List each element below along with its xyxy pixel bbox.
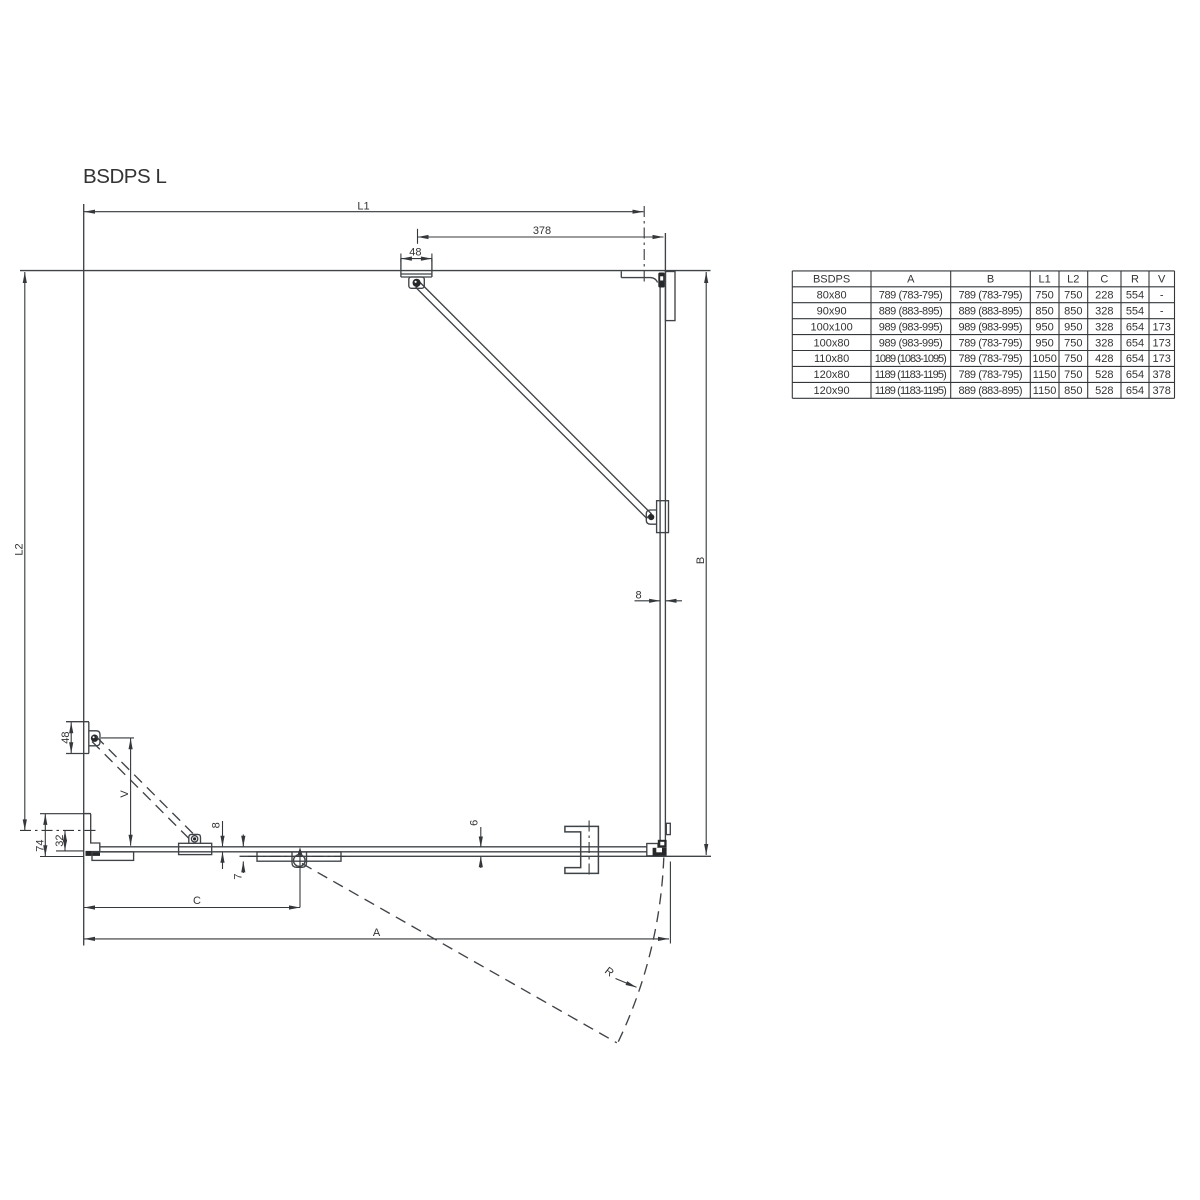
svg-text:90x90: 90x90 — [817, 306, 847, 318]
svg-text:654: 654 — [1126, 337, 1144, 349]
svg-text:889 (883-895): 889 (883-895) — [959, 306, 1023, 318]
svg-text:328: 328 — [1095, 337, 1113, 349]
svg-text:100x80: 100x80 — [814, 337, 850, 349]
svg-text:173: 173 — [1153, 353, 1171, 365]
svg-text:173: 173 — [1153, 321, 1171, 333]
svg-text:8: 8 — [635, 589, 641, 601]
svg-text:950: 950 — [1035, 337, 1053, 349]
svg-text:378: 378 — [533, 225, 551, 237]
svg-text:889 (883-895): 889 (883-895) — [879, 306, 943, 318]
svg-text:750: 750 — [1064, 290, 1082, 302]
svg-text:V: V — [119, 790, 131, 798]
svg-text:1150: 1150 — [1033, 385, 1057, 397]
svg-text:789 (783-795): 789 (783-795) — [959, 290, 1023, 302]
svg-text:120x90: 120x90 — [814, 385, 850, 397]
svg-text:528: 528 — [1095, 385, 1113, 397]
svg-text:750: 750 — [1064, 369, 1082, 381]
svg-text:654: 654 — [1126, 369, 1144, 381]
svg-text:74: 74 — [35, 839, 47, 851]
svg-text:889 (883-895): 889 (883-895) — [959, 385, 1023, 397]
svg-text:789 (783-795): 789 (783-795) — [959, 369, 1023, 381]
svg-text:R: R — [1131, 274, 1139, 286]
svg-text:378: 378 — [1153, 369, 1171, 381]
svg-text:528: 528 — [1095, 369, 1113, 381]
svg-text:48: 48 — [409, 247, 421, 259]
svg-text:7: 7 — [233, 873, 245, 879]
svg-text:L1: L1 — [1038, 274, 1050, 286]
svg-text:-: - — [1160, 306, 1164, 318]
svg-text:654: 654 — [1126, 385, 1144, 397]
svg-text:1189 (1183-1195): 1189 (1183-1195) — [875, 369, 947, 381]
svg-text:750: 750 — [1064, 353, 1082, 365]
svg-text:V: V — [1158, 274, 1166, 286]
svg-text:32: 32 — [54, 834, 66, 846]
svg-text:R: R — [602, 965, 616, 979]
svg-text:328: 328 — [1095, 306, 1113, 318]
svg-text:654: 654 — [1126, 321, 1144, 333]
svg-text:428: 428 — [1095, 353, 1113, 365]
svg-text:789 (783-795): 789 (783-795) — [959, 353, 1023, 365]
svg-text:L2: L2 — [14, 543, 26, 555]
svg-text:228: 228 — [1095, 290, 1113, 302]
svg-text:554: 554 — [1126, 290, 1144, 302]
svg-text:BSDPS L: BSDPS L — [83, 165, 166, 188]
svg-text:-: - — [1160, 290, 1164, 302]
svg-text:554: 554 — [1126, 306, 1144, 318]
svg-text:1089 (1083-1095): 1089 (1083-1095) — [875, 353, 947, 365]
svg-text:A: A — [907, 274, 915, 286]
svg-text:C: C — [193, 895, 201, 907]
svg-text:989 (983-995): 989 (983-995) — [959, 321, 1023, 333]
svg-text:989 (983-995): 989 (983-995) — [879, 321, 943, 333]
svg-text:L2: L2 — [1067, 274, 1079, 286]
svg-text:328: 328 — [1095, 321, 1113, 333]
svg-text:B: B — [695, 557, 707, 564]
svg-text:48: 48 — [60, 731, 72, 743]
svg-text:1189 (1183-1195): 1189 (1183-1195) — [875, 385, 947, 397]
svg-text:789 (783-795): 789 (783-795) — [959, 337, 1023, 349]
svg-text:378: 378 — [1153, 385, 1171, 397]
svg-text:950: 950 — [1035, 321, 1053, 333]
svg-text:C: C — [1100, 274, 1108, 286]
svg-text:BSDPS: BSDPS — [813, 274, 850, 286]
svg-text:110x80: 110x80 — [814, 353, 849, 365]
svg-text:750: 750 — [1064, 337, 1082, 349]
svg-text:989 (983-995): 989 (983-995) — [879, 337, 943, 349]
svg-text:850: 850 — [1064, 385, 1082, 397]
svg-text:6: 6 — [468, 820, 480, 826]
svg-text:654: 654 — [1126, 353, 1144, 365]
svg-text:1050: 1050 — [1032, 353, 1056, 365]
svg-text:950: 950 — [1064, 321, 1082, 333]
svg-text:L1: L1 — [357, 201, 369, 213]
svg-text:850: 850 — [1064, 306, 1082, 318]
svg-text:173: 173 — [1153, 337, 1171, 349]
svg-text:100x100: 100x100 — [810, 321, 852, 333]
svg-text:750: 750 — [1035, 290, 1053, 302]
svg-text:1150: 1150 — [1033, 369, 1057, 381]
svg-text:B: B — [987, 274, 994, 286]
svg-text:A: A — [373, 927, 381, 939]
svg-text:8: 8 — [211, 822, 223, 828]
svg-text:850: 850 — [1035, 306, 1053, 318]
svg-text:120x80: 120x80 — [814, 369, 850, 381]
svg-text:789 (783-795): 789 (783-795) — [879, 290, 943, 302]
svg-text:80x80: 80x80 — [817, 290, 847, 302]
